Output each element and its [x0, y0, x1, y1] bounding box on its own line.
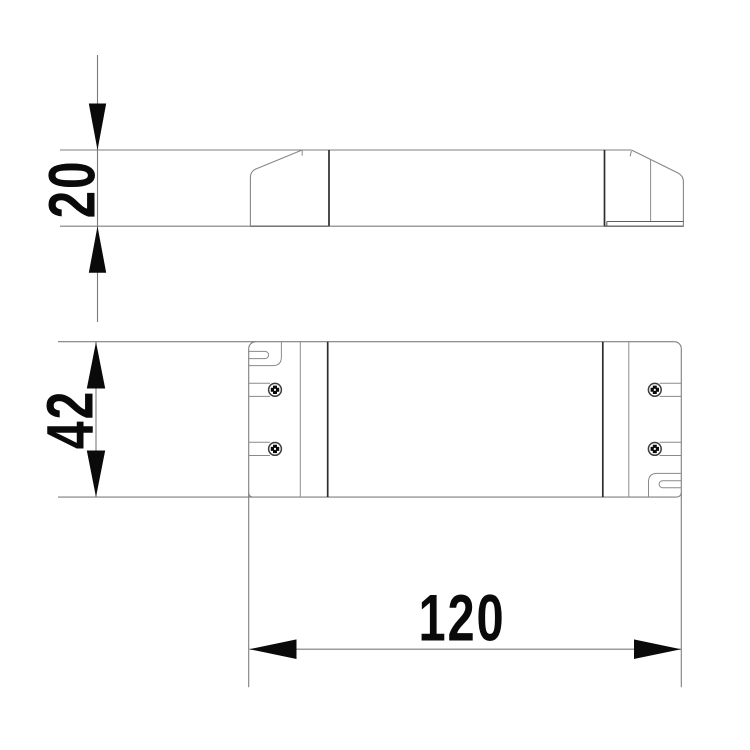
svg-text:120: 120	[418, 581, 505, 655]
svg-text:42: 42	[34, 390, 107, 450]
svg-text:20: 20	[36, 160, 110, 219]
